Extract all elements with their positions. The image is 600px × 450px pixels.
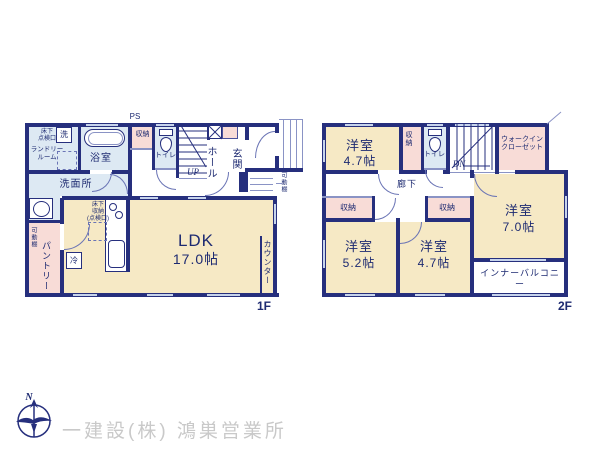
company-name: 一建設(株) 鴻巣営業所 [62, 416, 287, 443]
footer: N 一建設(株) 鴻巣営業所 [0, 0, 600, 450]
compass-n-label: N [22, 392, 36, 404]
